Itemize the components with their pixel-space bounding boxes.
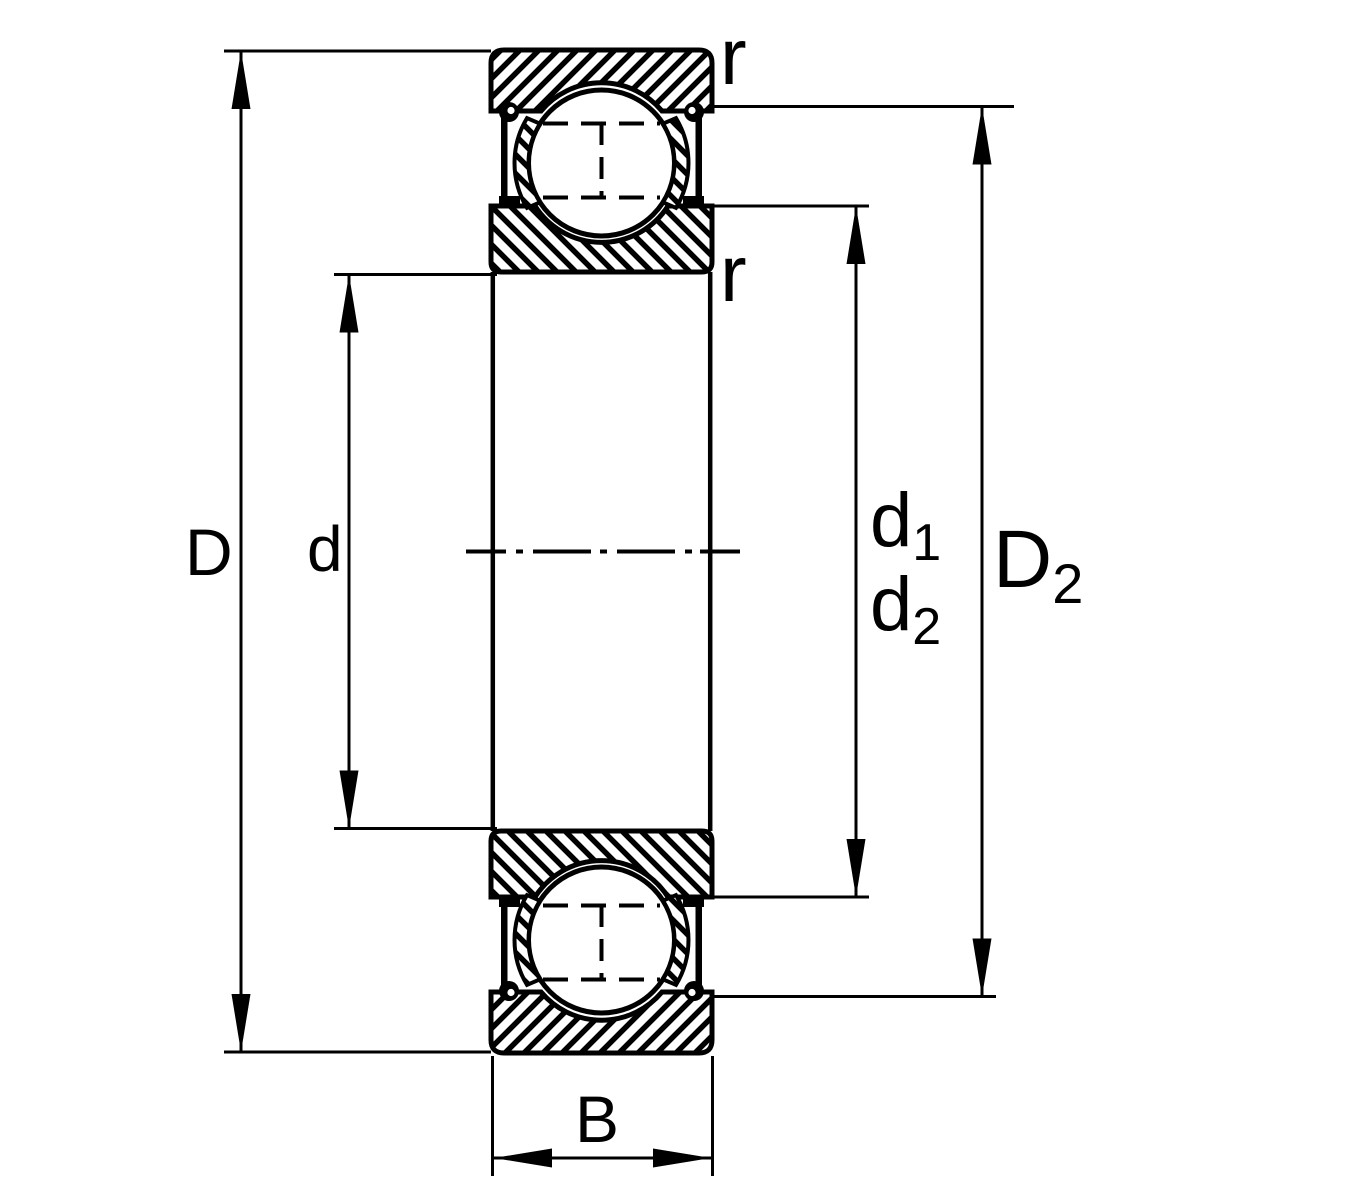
arrow-down bbox=[232, 994, 251, 1052]
label-land-diameter-2: d2 bbox=[870, 562, 941, 656]
arrow-down bbox=[973, 939, 992, 997]
label-corner-radius-outer: r bbox=[720, 12, 747, 101]
dimension-D bbox=[224, 51, 491, 1052]
label-recess-diameter: D2 bbox=[993, 514, 1083, 615]
arrow-up bbox=[232, 51, 251, 109]
arrow-right bbox=[653, 1149, 711, 1168]
label-outer-diameter: D bbox=[185, 515, 233, 589]
arrow-left bbox=[494, 1149, 552, 1168]
arrow-down bbox=[847, 839, 866, 897]
label-bore-diameter: d bbox=[307, 513, 343, 585]
label-width: B bbox=[575, 1082, 619, 1156]
label-corner-radius-inner: r bbox=[720, 229, 747, 318]
bearing-top-section bbox=[491, 50, 712, 272]
arrow-up bbox=[340, 275, 359, 333]
dimension-D2 bbox=[712, 107, 1014, 997]
arrow-up bbox=[973, 107, 992, 165]
arrow-up bbox=[847, 206, 866, 264]
bearing-bottom-section bbox=[491, 831, 712, 1053]
label-land-diameter-1: d1 bbox=[870, 478, 941, 572]
arrow-down bbox=[340, 771, 359, 829]
bearing-dimension-diagram: D d r r d1 d2 D2 B bbox=[0, 0, 1350, 1200]
diagram-canvas: D d r r d1 d2 D2 B bbox=[0, 0, 1350, 1200]
